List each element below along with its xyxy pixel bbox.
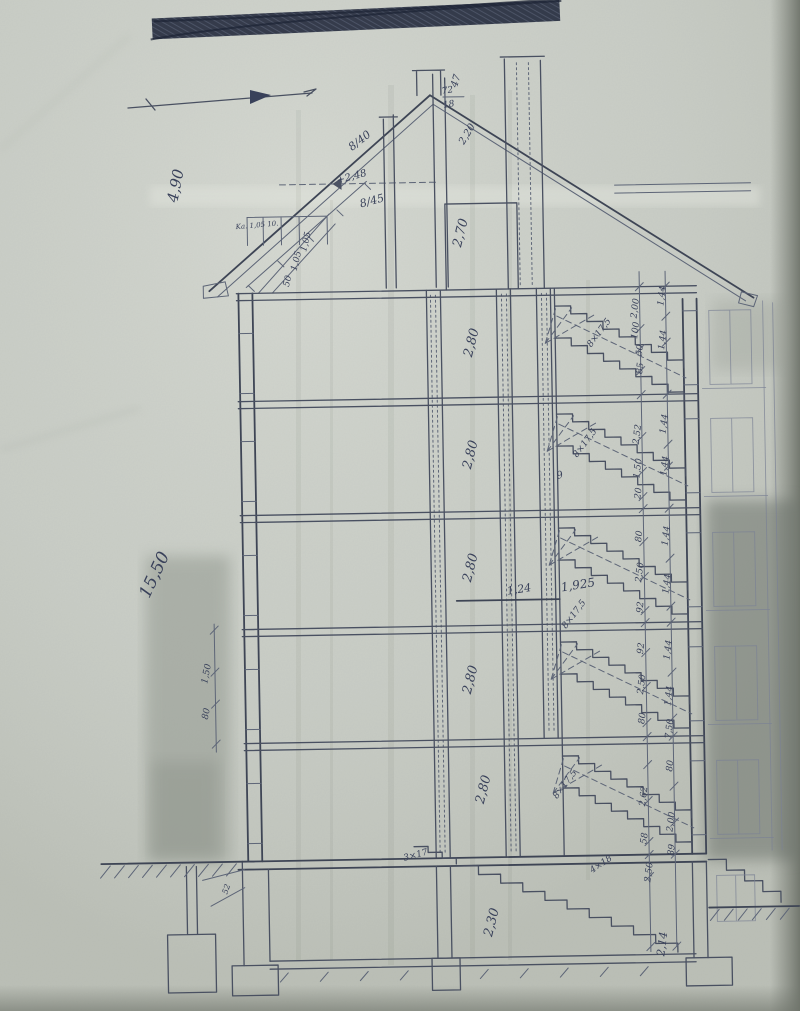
chimney-size-denominator: 18 xyxy=(442,99,455,111)
dimension-label: 80 xyxy=(637,712,648,725)
smudge xyxy=(152,762,218,858)
dimension-label: 80 xyxy=(665,759,676,772)
dimension-label: 20 xyxy=(633,487,644,501)
chimney-size-numerator: 72 xyxy=(441,85,454,97)
dimension-label: 89 xyxy=(666,843,677,856)
paper-bottom-edge-shadow xyxy=(0,985,800,1011)
smudge xyxy=(706,500,798,860)
dimension-label: 58 xyxy=(639,832,650,845)
photocopy-light-band xyxy=(150,186,760,206)
dimension-label: 92 xyxy=(635,601,646,614)
scanned-drawing-page: 4,904772182,208/40+2,488/45Ka. 1,05 10.5… xyxy=(0,0,800,1011)
dimension-label: 92 xyxy=(636,642,647,655)
dimension-label: 100 xyxy=(630,321,642,340)
dimension-label: 50 xyxy=(635,344,646,357)
dimension-label: 80 xyxy=(634,530,645,543)
dimension-label: 85 xyxy=(635,362,646,375)
